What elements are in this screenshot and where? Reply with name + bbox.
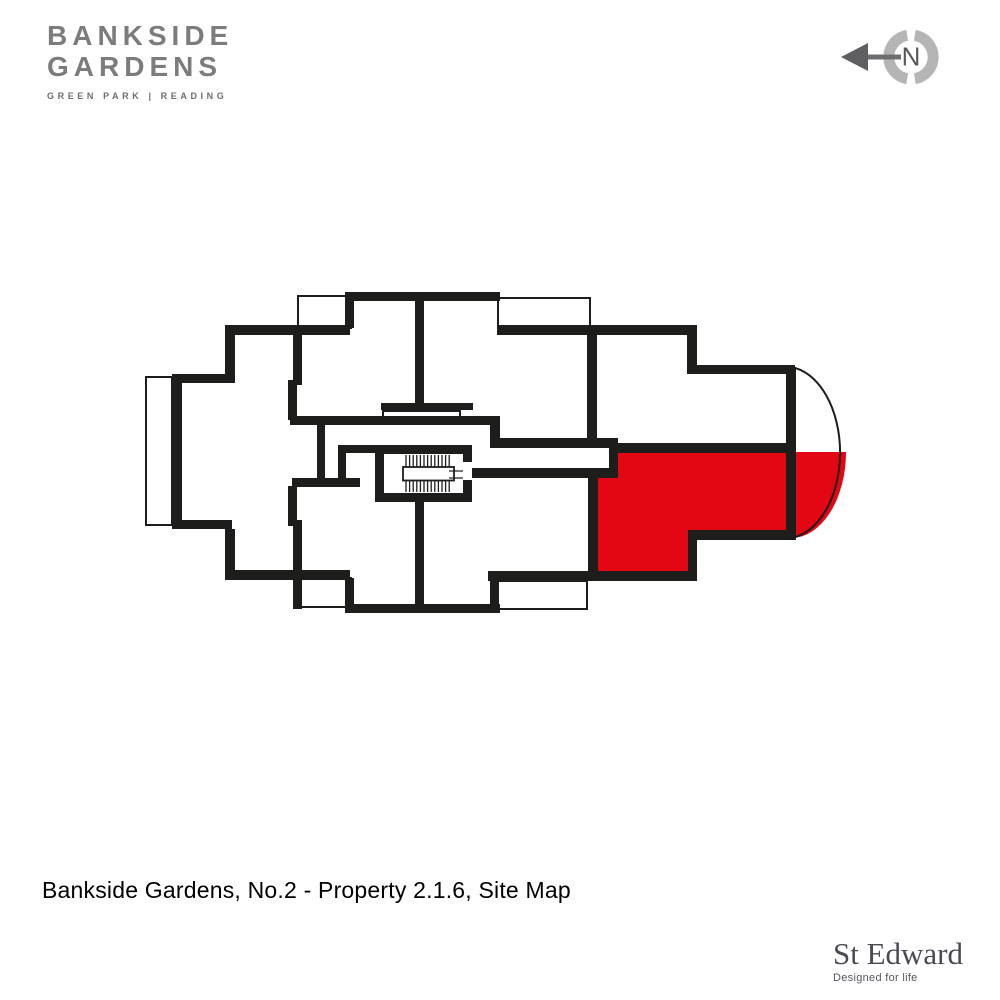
site-map-page: BANKSIDE GARDENS GREEN PARK | READING N xyxy=(0,0,1000,1000)
balcony-bottom-right xyxy=(498,581,587,609)
wall xyxy=(290,416,500,425)
plan-caption: Bankside Gardens, No.2 - Property 2.1.6,… xyxy=(42,877,571,904)
wall xyxy=(687,365,795,374)
wall xyxy=(225,570,350,580)
floor-plan xyxy=(0,0,1000,1000)
wall xyxy=(463,468,618,478)
highlighted-unit xyxy=(593,448,846,576)
wall xyxy=(587,326,597,440)
wall xyxy=(688,530,795,540)
wall xyxy=(492,438,618,448)
balcony-bottom-left xyxy=(298,578,351,607)
wall xyxy=(317,424,325,478)
wall xyxy=(415,292,424,408)
wall xyxy=(490,580,499,607)
wall xyxy=(293,520,302,609)
developer-brand: St Edward Designed for life xyxy=(833,938,963,984)
wall xyxy=(588,468,598,580)
stair-landing xyxy=(403,467,454,481)
wall xyxy=(609,438,618,478)
wall xyxy=(288,380,297,420)
stair-door-gap xyxy=(463,462,472,480)
wall xyxy=(338,445,375,453)
wall xyxy=(225,325,350,335)
wall xyxy=(415,497,424,613)
wall xyxy=(490,416,500,448)
developer-brand-name: St Edward xyxy=(833,938,963,970)
plan-walls xyxy=(172,292,796,613)
wall xyxy=(345,578,354,608)
wall xyxy=(345,301,354,328)
wall xyxy=(293,330,302,385)
balcony-top-right xyxy=(498,298,590,327)
wall xyxy=(172,374,182,529)
highlighted-unit-bay-half xyxy=(791,452,846,538)
balcony-top-left xyxy=(298,296,351,328)
wall xyxy=(292,478,360,487)
wall xyxy=(786,367,796,540)
stair-core xyxy=(384,454,472,493)
wall xyxy=(172,520,232,529)
balcony-left xyxy=(146,377,172,525)
developer-brand-tagline: Designed for life xyxy=(833,972,963,984)
wall xyxy=(609,443,795,453)
wall xyxy=(381,403,473,410)
